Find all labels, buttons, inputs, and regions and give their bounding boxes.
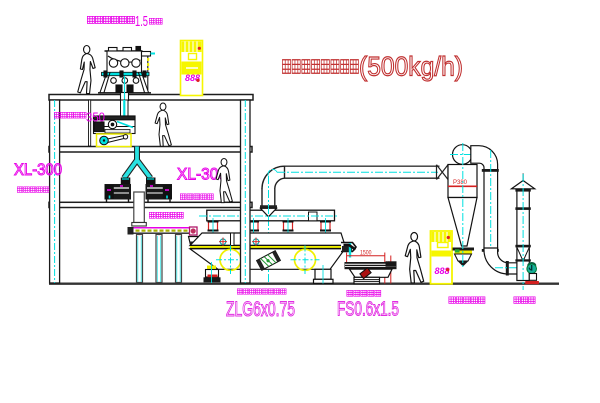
svg-text:1.5: 1.5 <box>135 13 148 30</box>
svg-text:ZLG6x0.75: ZLG6x0.75 <box>226 297 295 321</box>
svg-text:1500: 1500 <box>360 250 372 257</box>
svg-text:XL-300: XL-300 <box>14 161 62 179</box>
svg-text:350: 350 <box>86 110 105 125</box>
svg-text:(500kg/h): (500kg/h) <box>359 52 463 82</box>
svg-text:FS0.6x1.5: FS0.6x1.5 <box>337 298 399 321</box>
svg-text:P380: P380 <box>453 180 468 186</box>
